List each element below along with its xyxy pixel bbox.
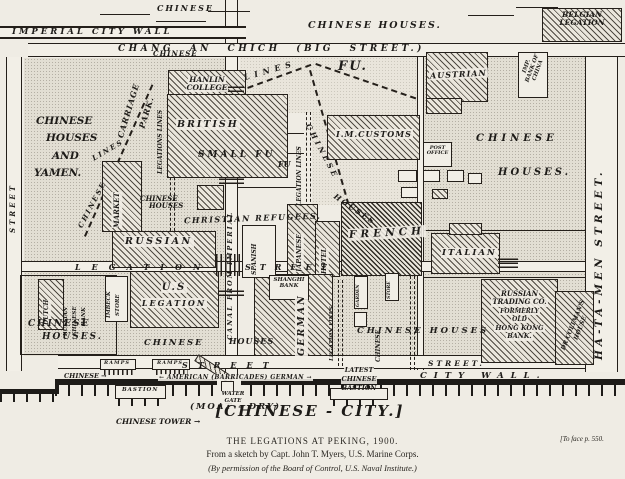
block-market <box>102 161 142 232</box>
label-chinese-tower: CHINESE TOWER → <box>116 418 200 426</box>
label-top-chinese: CHINESE <box>157 4 214 12</box>
chinese-lines-dashed-south <box>410 271 415 370</box>
label-german: GERMAN <box>297 296 307 356</box>
block-italian-step <box>449 223 482 235</box>
label-post-office: POST OFFICE <box>424 146 451 157</box>
label-legation-lines-mid: LEGATION LINES <box>297 116 303 206</box>
label-chinese-houses-bottom-left: CHINESE HOUSES. <box>28 318 103 344</box>
label-fu-small: FU <box>278 160 291 168</box>
label-chinese-houses-yamen: CHINESE HOUSES AND YAMEN. <box>30 113 97 182</box>
label-houses-bottom-center: HOUSES <box>229 337 274 345</box>
label-russian-legation: RUSSIAN <box>124 237 194 247</box>
label-street-bottom: STREET <box>182 361 279 369</box>
label-imbeck-1: IMBECK <box>107 280 113 318</box>
rail-line <box>468 15 514 16</box>
block-house-hatched <box>432 189 448 199</box>
label-us-legation: U.S LEGATION <box>133 280 215 312</box>
label-chinese-houses-top: CHINESE HOUSES. <box>308 21 442 31</box>
caption-permission: (By permission of the Board of Control, … <box>60 464 565 473</box>
rail-line <box>100 14 150 15</box>
barricade-marks-east <box>498 256 518 268</box>
label-im-customs: I.M.CUSTOMS <box>335 130 413 138</box>
label-chang-an-street: CHANG AN CHICH (BIG STREET.) <box>118 45 425 54</box>
label-market: MARKET <box>113 168 120 228</box>
label-legation-street-w1: LEGATION <box>75 263 211 271</box>
label-legation-street-w2: STREET <box>245 263 336 271</box>
label-british: BRITISH <box>176 120 240 130</box>
rail-line <box>208 11 250 12</box>
label-chinese-city: [CHINESE - CITY.] <box>215 404 405 420</box>
label-ramps-1: RAMPS <box>104 361 130 366</box>
caption-credit: From a sketch by Capt. John T. Myers, U.… <box>60 450 565 459</box>
label-chinese-line-south: CHINESE <box>376 312 382 362</box>
small-fu-wall <box>238 187 296 188</box>
block-small-house <box>354 312 367 327</box>
label-shanghi-bank: SHANGHI BANK <box>270 278 308 290</box>
label-garden: GARDEN <box>357 279 362 307</box>
label-chinese-houses-small: CHINESE HOUSES <box>140 195 183 210</box>
label-legations-lines-west: LEGATIONS LINES <box>158 90 164 174</box>
label-chinese-houses-bottom-right: CHINESE HOUSES <box>357 327 489 336</box>
block-house <box>398 170 417 182</box>
label-latest-chinese-bastion: LATEST CHINESE BASTION <box>328 366 390 393</box>
block-house <box>423 170 440 182</box>
block-secretary-house <box>197 185 224 210</box>
label-chinese-houses-east-1: CHINESE <box>476 134 558 145</box>
trading-quarter-line <box>424 277 585 278</box>
caption-title: THE LEGATIONS AT PEKING, 1900. <box>60 437 565 446</box>
label-small-fu: SMALL FU <box>198 151 275 160</box>
city-wall-left-teeth <box>0 394 58 402</box>
label-store: STORE <box>388 275 393 299</box>
label-street-bottom-right: STREET. <box>428 360 485 368</box>
label-imbeck-2: STORE <box>116 282 122 316</box>
label-legation-lines-south: LEGATION LINES <box>330 287 336 361</box>
label-bastion: BASTION <box>122 388 158 394</box>
label-italian: ITALIAN <box>441 249 498 258</box>
wall-bastion-teeth <box>118 399 163 406</box>
label-imperial-city-wall: IMPERIAL CITY WALL <box>12 28 172 37</box>
rail-line <box>156 21 206 22</box>
caption-page-note: [To face p. 550. <box>560 436 604 443</box>
ramps-marks <box>104 370 134 375</box>
label-russian-trading-co: RUSSIAN TRADING CO. FORMERLY OLD HONG KO… <box>483 290 556 341</box>
label-hatamen-street: HA-TA-MEN STREET. <box>594 78 605 360</box>
label-belgian-legation: BELGIAN LEGATION <box>544 11 620 27</box>
label-water-gate: WATER GATE <box>214 391 252 405</box>
label-canal: CANAL FROM IMPERIAL <box>227 160 234 340</box>
label-street-west: STREET <box>9 155 16 233</box>
label-chinese-arrow: CHINESE → <box>64 373 107 380</box>
label-ramps-2: RAMPS <box>157 361 183 366</box>
label-city-wall: CITY WALL. <box>420 372 547 381</box>
block-house <box>401 187 418 198</box>
label-fu: FU. <box>338 60 368 74</box>
label-hanlin-college: HANLIN COLLEGE <box>170 76 244 92</box>
label-barricades: ← AMERICAN (BARRICADES) GERMAN → <box>158 375 313 381</box>
label-chinese-bottom-center: CHINESE <box>144 339 204 348</box>
peking-legations-map: CHINESE IMPERIAL CITY WALL CHANG AN CHIC… <box>0 0 625 479</box>
block-house <box>447 170 464 182</box>
block-austrian-step <box>426 98 462 114</box>
block-house <box>468 173 482 184</box>
legation-lines-dashed-south <box>338 280 343 366</box>
city-wall-joint <box>55 379 59 394</box>
label-chinese-houses-east-2: HOUSES. <box>498 168 571 179</box>
